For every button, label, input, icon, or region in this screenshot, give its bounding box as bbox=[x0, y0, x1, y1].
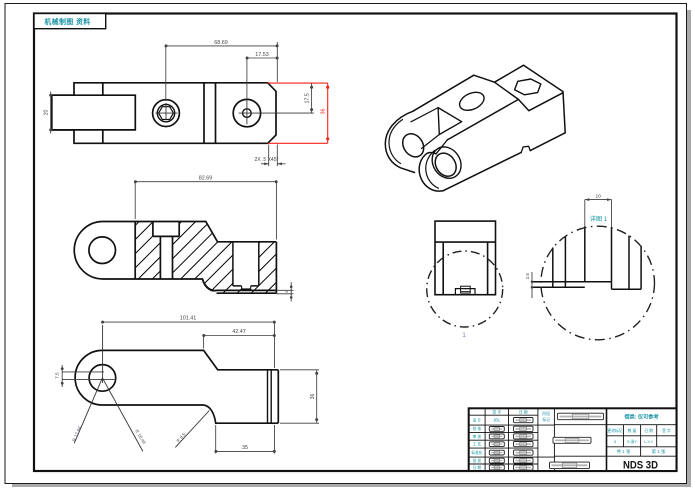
svg-text:第 1 张: 第 1 张 bbox=[652, 448, 666, 455]
svg-text:36: 36 bbox=[321, 109, 327, 115]
svg-text:更改标记: 更改标记 bbox=[607, 428, 622, 433]
svg-text:L.X.1: L.X.1 bbox=[644, 440, 653, 444]
svg-text:批 准: 批 准 bbox=[473, 458, 482, 463]
svg-text:数 量: 数 量 bbox=[628, 428, 637, 433]
svg-text:17.5: 17.5 bbox=[304, 93, 310, 103]
svg-text:校 核: 校 核 bbox=[473, 426, 482, 431]
svg-text:S.浙Y: S.浙Y bbox=[627, 439, 637, 444]
svg-text:NDS 3D: NDS 3D bbox=[623, 460, 658, 472]
svg-text:标记: 标记 bbox=[542, 417, 550, 422]
svg-text:5: 5 bbox=[614, 440, 616, 444]
svg-text:设 计: 设 计 bbox=[473, 418, 482, 423]
svg-text:工 艺: 工 艺 bbox=[473, 442, 482, 447]
svg-text:借类: 仅可参考: 借类: 仅可参考 bbox=[623, 413, 658, 421]
svg-text:日 期: 日 期 bbox=[519, 409, 528, 414]
svg-text:17.53: 17.53 bbox=[255, 52, 269, 58]
svg-text:共 1 张: 共 1 张 bbox=[617, 448, 631, 455]
svg-text:签 字: 签 字 bbox=[662, 428, 671, 433]
svg-text:2.5: 2.5 bbox=[525, 273, 530, 280]
svg-text:7.5: 7.5 bbox=[55, 372, 60, 379]
svg-text:68.69: 68.69 bbox=[214, 40, 228, 46]
svg-text:101.41: 101.41 bbox=[180, 316, 197, 322]
svg-text:2X .5 X45°: 2X .5 X45° bbox=[255, 157, 279, 163]
svg-text:JBL: JBL bbox=[493, 418, 501, 423]
svg-text:42.47: 42.47 bbox=[232, 329, 246, 335]
svg-text:35: 35 bbox=[242, 445, 248, 451]
svg-text:日 期: 日 期 bbox=[644, 428, 653, 433]
svg-text:10: 10 bbox=[596, 193, 602, 199]
svg-text:详图 1: 详图 1 bbox=[590, 215, 608, 223]
svg-text:阶段: 阶段 bbox=[542, 411, 550, 416]
svg-text:日 期: 日 期 bbox=[473, 465, 482, 470]
svg-text:1: 1 bbox=[462, 332, 466, 339]
svg-text:审 核: 审 核 bbox=[473, 434, 482, 439]
svg-text:签 字: 签 字 bbox=[492, 409, 501, 414]
svg-text:20: 20 bbox=[44, 110, 50, 116]
svg-text:82.69: 82.69 bbox=[199, 175, 213, 181]
svg-text:机械制图 资料: 机械制图 资料 bbox=[45, 17, 91, 26]
svg-text:36: 36 bbox=[310, 394, 316, 400]
svg-text:标准化: 标准化 bbox=[471, 450, 483, 455]
